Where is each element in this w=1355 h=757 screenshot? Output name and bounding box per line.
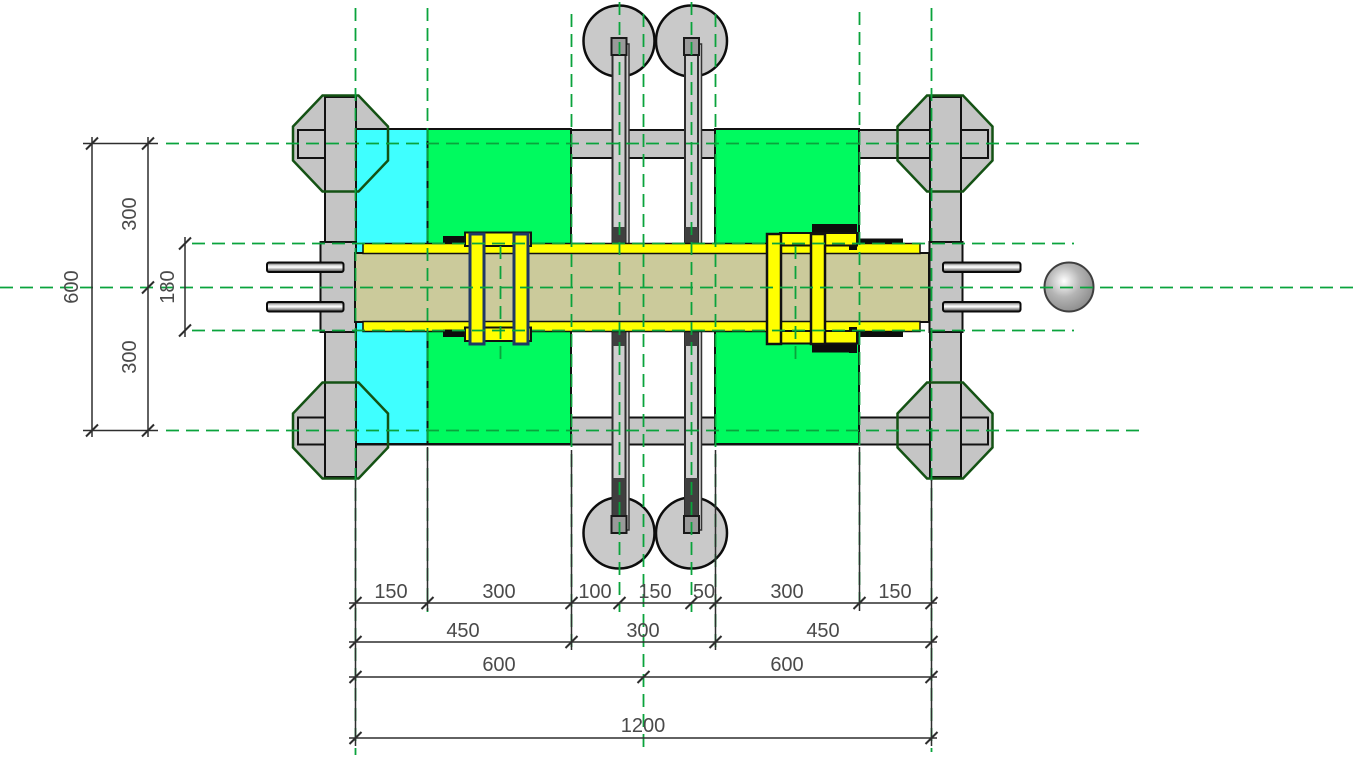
technical-drawing-canvas: 150 300 100 150 50 300 150 450 300 450 6… <box>0 0 1355 757</box>
clamp-post <box>514 234 528 344</box>
clamp-post <box>767 234 781 344</box>
prong-left-lower <box>267 302 344 312</box>
dim-label: 300 <box>626 620 659 642</box>
dim-label-lower-height: 300 <box>119 340 141 373</box>
dim-label-beam-height: 180 <box>157 270 179 303</box>
dim-label: 300 <box>482 581 515 603</box>
cad-drawing-page: 150 300 100 150 50 300 150 450 300 450 6… <box>0 0 1355 757</box>
dim-label: 600 <box>770 654 803 676</box>
beam-end-band-bottom <box>857 332 903 338</box>
dim-label: 600 <box>482 654 515 676</box>
dim-label: 300 <box>770 581 803 603</box>
dim-label: 150 <box>878 581 911 603</box>
dim-label: 150 <box>374 581 407 603</box>
dim-label: 450 <box>446 620 479 642</box>
dim-label: 100 <box>578 581 611 603</box>
dim-label: 1200 <box>621 715 666 737</box>
dim-label-upper-height: 300 <box>119 197 141 230</box>
prong-right-lower <box>943 302 1021 312</box>
clamp-post <box>470 234 484 344</box>
prong-left-upper <box>267 263 344 273</box>
dim-label: 150 <box>638 581 671 603</box>
dim-label: 50 <box>693 581 715 603</box>
clamp-post <box>811 234 825 344</box>
prong-right-upper <box>943 263 1021 273</box>
dim-label: 450 <box>806 620 839 642</box>
dim-label-total-height: 600 <box>61 270 83 303</box>
